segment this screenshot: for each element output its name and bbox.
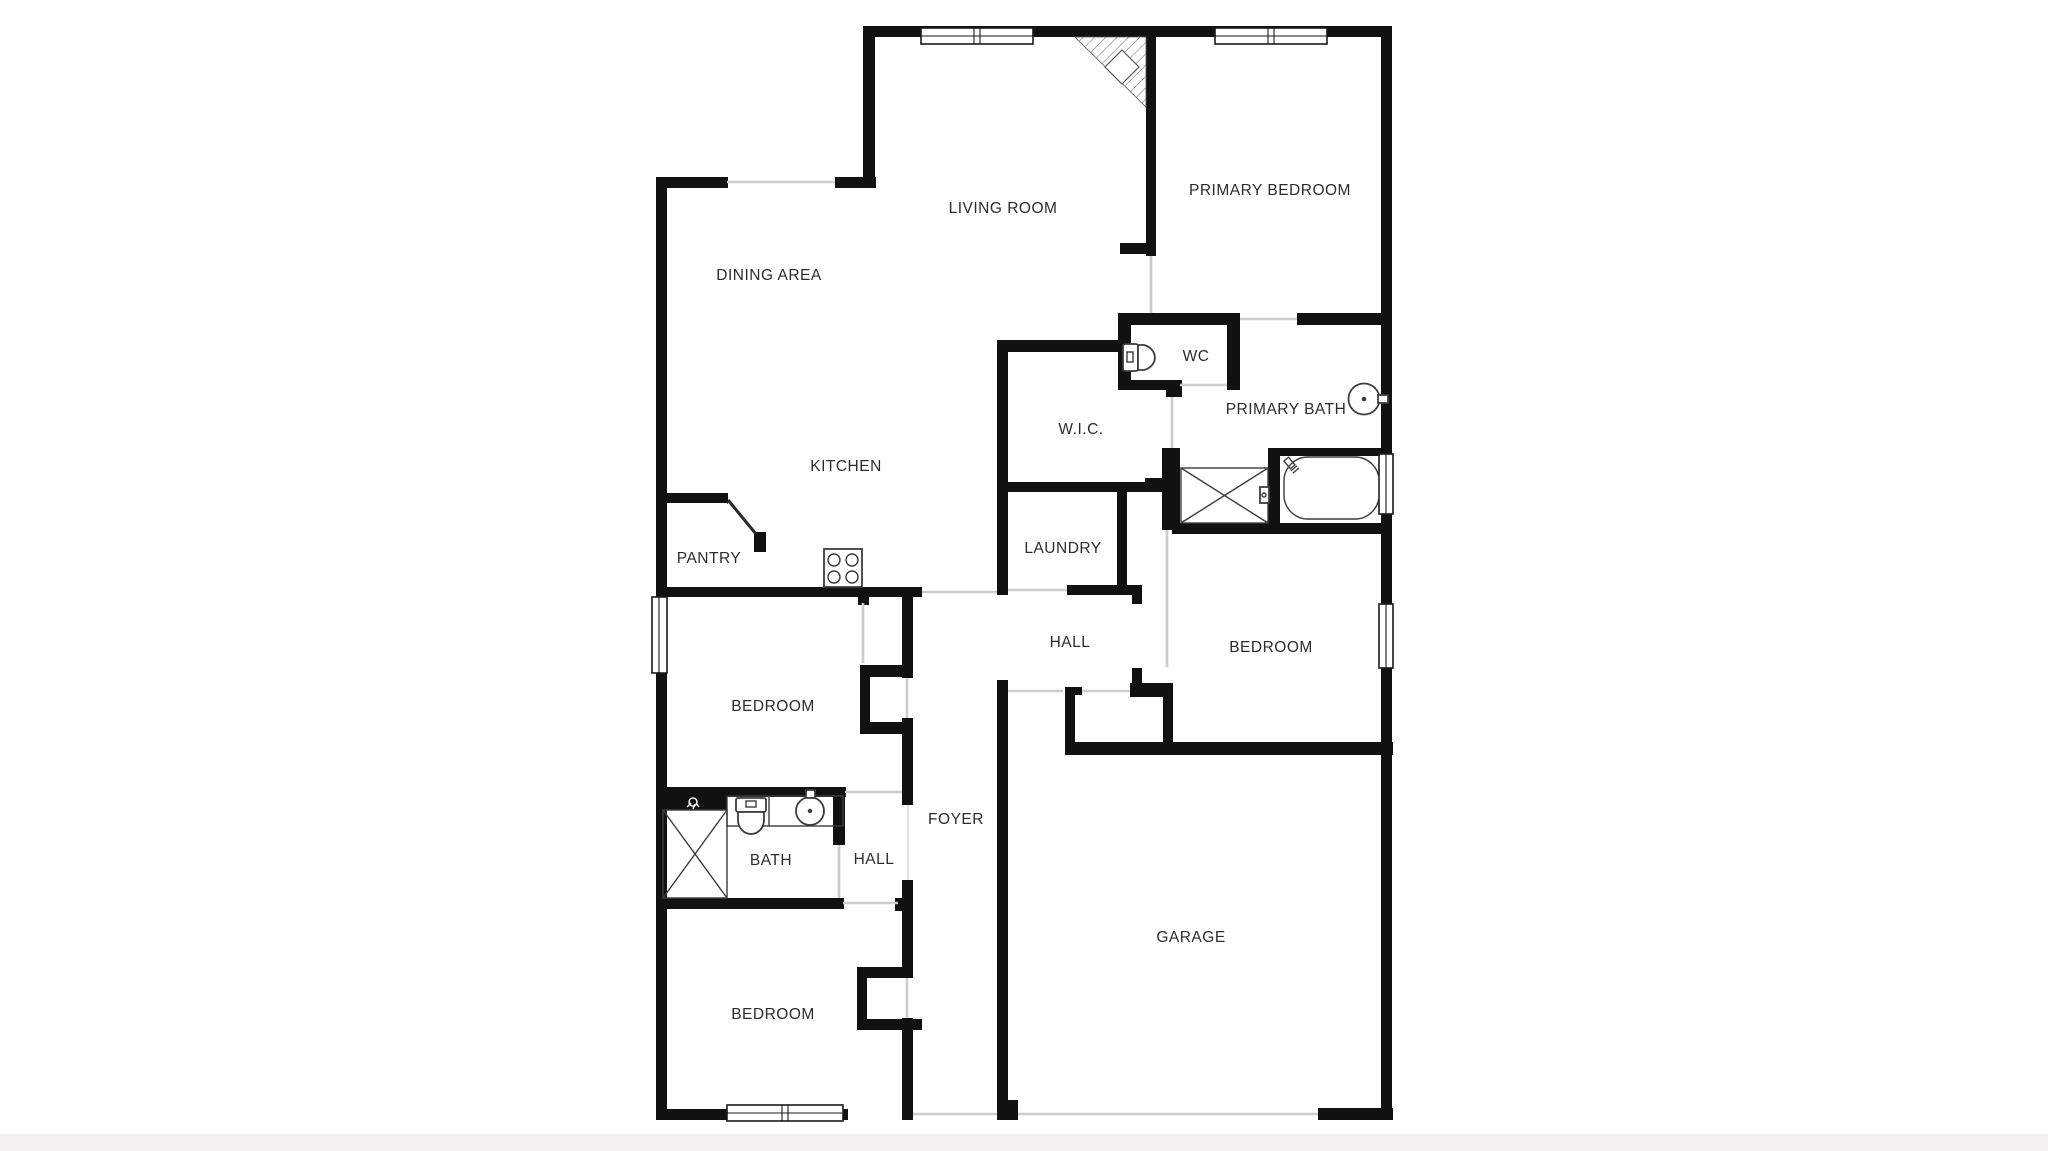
shower-icon — [663, 798, 727, 898]
room-label-foyer: FOYER — [928, 811, 984, 829]
window-icon — [1379, 454, 1393, 514]
window-icon — [1379, 604, 1393, 668]
room-label-primary-bath: PRIMARY BATH — [1226, 401, 1347, 419]
room-label-hall-lower: HALL — [854, 851, 895, 869]
door-leaf — [728, 500, 756, 534]
room-label-primary-bedroom: PRIMARY BEDROOM — [1189, 182, 1351, 200]
window-icon — [727, 1105, 843, 1121]
floor-plan-page: LIVING ROOMPRIMARY BEDROOMDINING AREAWCP… — [0, 0, 2048, 1151]
stove-icon — [824, 549, 862, 587]
window-icon — [921, 28, 1033, 44]
ground-strip — [0, 1134, 2048, 1151]
floor-plan — [0, 0, 2048, 1151]
room-label-kitchen: KITCHEN — [810, 458, 882, 476]
shower-icon — [1181, 468, 1269, 523]
room-label-living-room: LIVING ROOM — [949, 200, 1058, 218]
window-icon — [652, 597, 667, 673]
bathtub-icon — [1283, 457, 1379, 519]
room-label-hall-upper: HALL — [1050, 634, 1091, 652]
room-label-wc: WC — [1183, 348, 1210, 366]
window-icon — [1215, 28, 1327, 44]
toilet-icon — [736, 798, 766, 834]
fireplace-icon — [1075, 37, 1146, 107]
room-label-laundry: LAUNDRY — [1024, 540, 1101, 558]
room-label-bedroom-left: BEDROOM — [731, 698, 815, 716]
room-label-bath: BATH — [750, 852, 792, 870]
room-label-garage: GARAGE — [1156, 929, 1225, 947]
room-label-pantry: PANTRY — [677, 550, 741, 568]
room-label-bedroom-bottom: BEDROOM — [731, 1006, 815, 1024]
toilet-icon — [1123, 344, 1155, 371]
room-label-bedroom-right: BEDROOM — [1229, 639, 1313, 657]
room-label-wic: W.I.C. — [1058, 421, 1103, 439]
room-label-dining-area: DINING AREA — [716, 267, 821, 285]
